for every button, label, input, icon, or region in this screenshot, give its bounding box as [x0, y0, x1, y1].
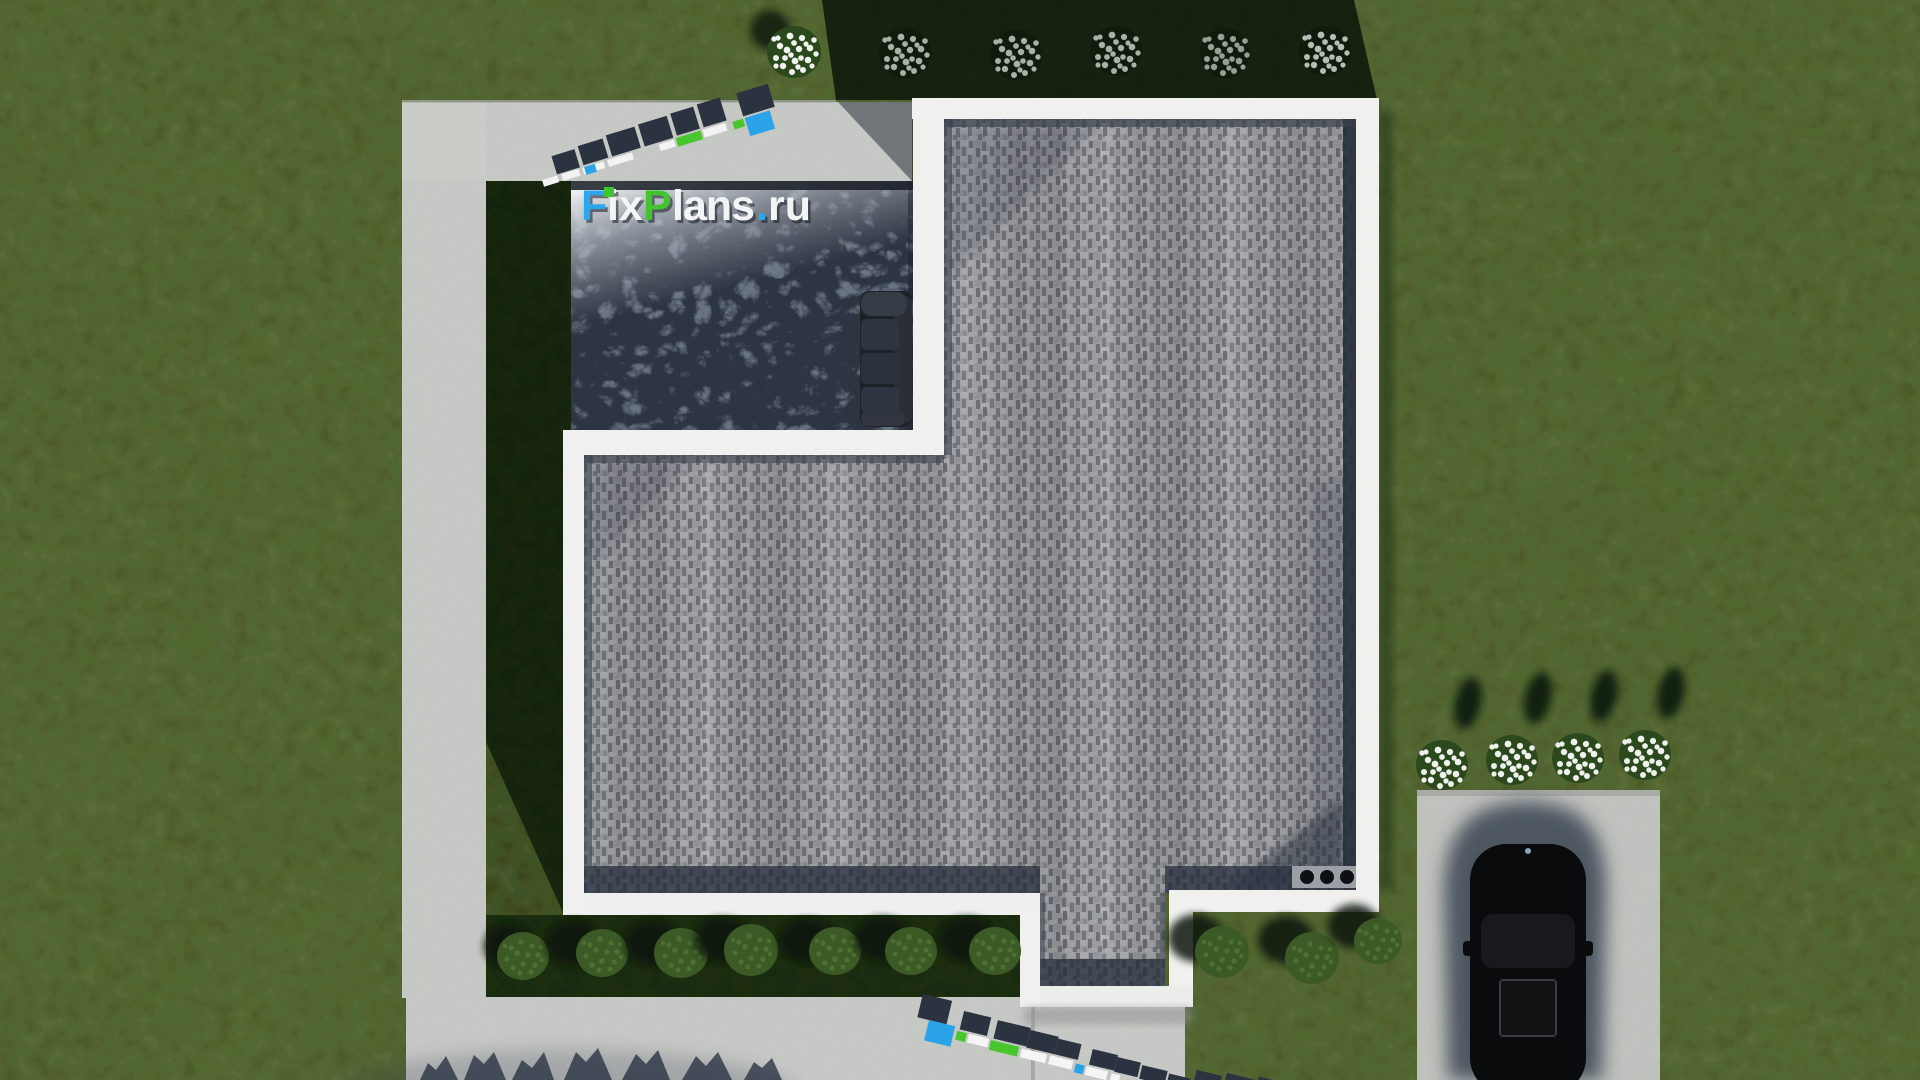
svg-text:F: F — [581, 182, 607, 230]
svg-text:lans: lans — [672, 182, 754, 230]
svg-text:ru: ru — [768, 182, 811, 230]
svg-text:.: . — [756, 182, 768, 230]
svg-text:P: P — [643, 182, 672, 230]
